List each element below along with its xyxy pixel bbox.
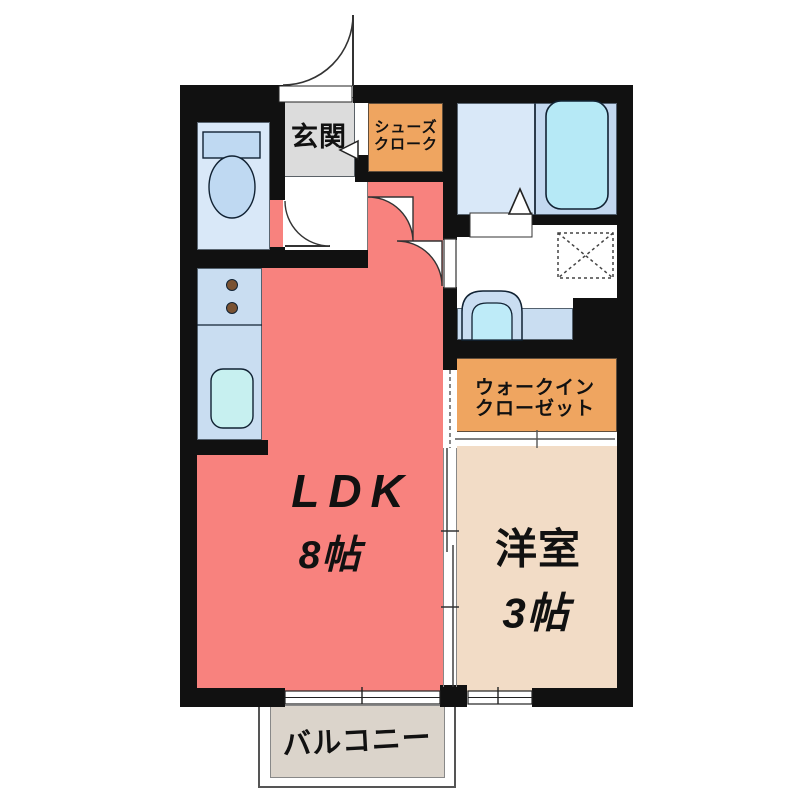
room-bathroom bbox=[457, 103, 535, 215]
wall bbox=[270, 85, 285, 200]
western-room-label: 洋室 bbox=[495, 525, 581, 572]
wall bbox=[443, 182, 457, 240]
wall bbox=[617, 85, 633, 705]
room-hallway bbox=[283, 177, 368, 250]
room-toilet bbox=[197, 122, 270, 250]
wall bbox=[180, 85, 197, 707]
shoes-cloak-label: シューズ クローク bbox=[374, 120, 438, 154]
wall bbox=[180, 85, 283, 122]
ldk-label: LDK bbox=[291, 466, 413, 518]
room-kitchen bbox=[197, 268, 262, 440]
washroom-counter bbox=[457, 308, 573, 340]
wall bbox=[440, 685, 467, 707]
genkan-label: 玄関 bbox=[291, 122, 347, 152]
sliding-door-strip bbox=[443, 370, 457, 687]
wic-door-band bbox=[455, 432, 617, 446]
wall bbox=[180, 250, 368, 268]
floor-plan: 玄関 シューズ クローク LDK 8帖 ウォークイン クローゼット 洋室 3帖 … bbox=[0, 0, 800, 800]
wall bbox=[355, 155, 368, 182]
wall bbox=[532, 215, 617, 225]
room-bathtub-area bbox=[535, 103, 617, 215]
western-room-size-label: 3帖 bbox=[502, 589, 569, 636]
wall bbox=[197, 440, 268, 455]
ldk-size-label: 8帖 bbox=[299, 534, 362, 578]
wall bbox=[443, 340, 617, 358]
wall bbox=[573, 298, 617, 340]
wall bbox=[532, 688, 633, 707]
wic-label: ウォークイン クローゼット bbox=[475, 378, 595, 421]
entrance-door-arc bbox=[283, 15, 353, 85]
wall bbox=[353, 85, 633, 103]
wall bbox=[180, 688, 285, 707]
washroom-door-leaf bbox=[444, 239, 456, 288]
